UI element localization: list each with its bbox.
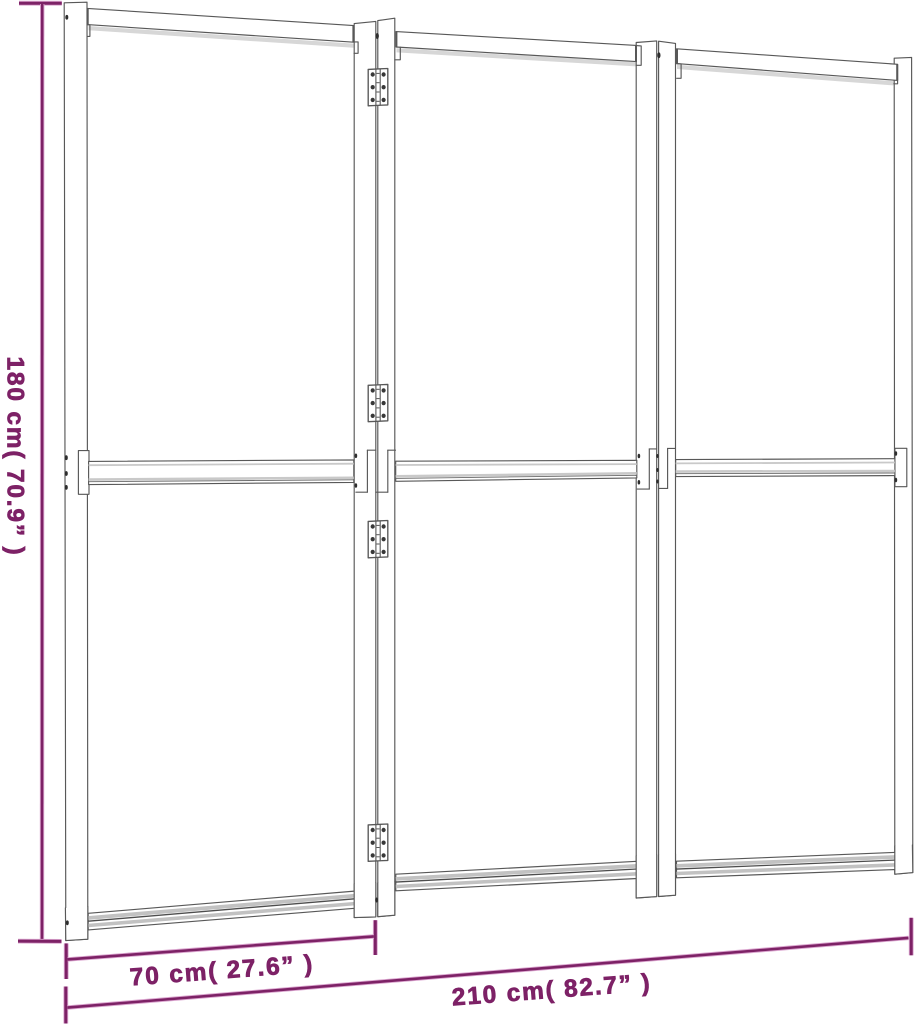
svg-text:180 cm( 70.9” ): 180 cm( 70.9” ): [2, 357, 29, 557]
